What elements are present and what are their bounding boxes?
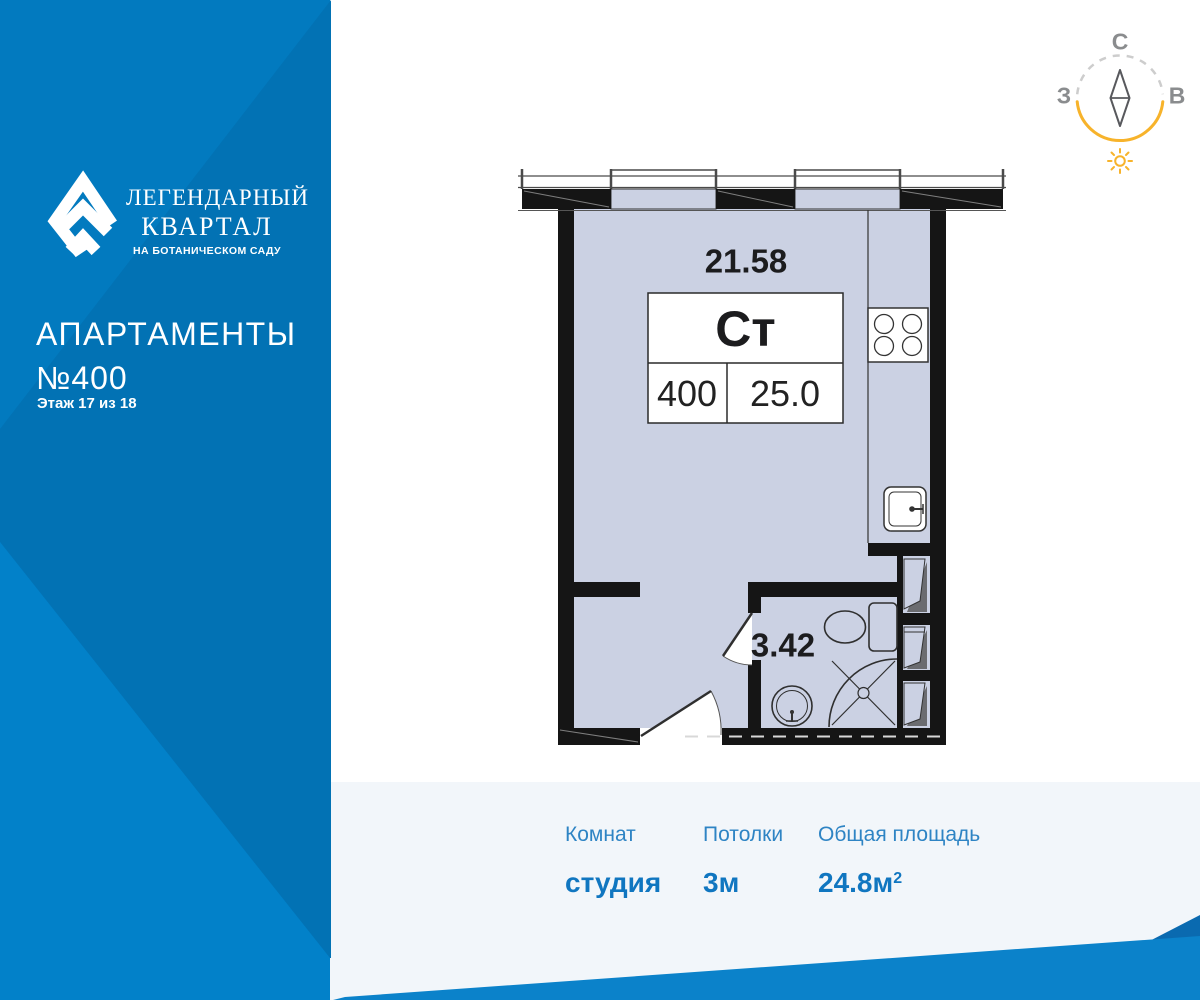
listing-number: №400 [36, 362, 128, 394]
summary-value-rooms: студия [565, 869, 661, 897]
summary-value-total-area: 24.8м2 [818, 869, 902, 897]
compass-icon [1077, 55, 1163, 173]
kitchen-sink-icon [884, 487, 926, 531]
summary-value-ceilings: 3м [703, 869, 739, 897]
brand-tagline: НА БОТАНИЧЕСКОМ САДУ [126, 246, 288, 257]
summary-value-total-area-text: 24.8м [818, 867, 893, 898]
summary-label-rooms: Комнат [565, 824, 636, 845]
summary-value-ceilings-text: 3м [703, 867, 739, 898]
left-panel [0, 0, 331, 1000]
main-room-area-label: 21.58 [705, 245, 788, 278]
compass-needle [1111, 70, 1130, 126]
apartment-flyer-page: ЛЕГЕНДАРНЫЙ КВАРТАЛ НА БОТАНИЧЕСКОМ САДУ… [0, 0, 1200, 1000]
sun-icon [1108, 149, 1132, 173]
brand-name-line2: КВАРТАЛ [126, 214, 288, 240]
flyer-graphics [0, 0, 1200, 1000]
compass-north-label: С [1112, 31, 1129, 54]
balcony-railing [518, 169, 1006, 189]
brand-name-line1: ЛЕГЕНДАРНЫЙ [126, 186, 288, 209]
listing-title: АПАРТАМЕНТЫ [36, 318, 297, 350]
compass-east-label: В [1169, 85, 1186, 108]
unit-number-label: 400 [657, 376, 717, 412]
unit-code-label: Ст [715, 304, 776, 354]
summary-label-ceilings: Потолки [703, 824, 783, 845]
shaft-cells [904, 559, 927, 726]
summary-value-total-area-sup: 2 [893, 870, 902, 887]
summary-value-rooms-text: студия [565, 867, 661, 898]
unit-area-label: 25.0 [750, 376, 820, 412]
floor-note: Этаж 17 из 18 [37, 396, 137, 411]
stove-icon [868, 308, 928, 362]
washbasin-icon [772, 686, 812, 726]
bathroom-area-label: 3.42 [751, 629, 815, 662]
compass-west-label: З [1057, 85, 1071, 108]
summary-label-total-area: Общая площадь [818, 824, 980, 845]
